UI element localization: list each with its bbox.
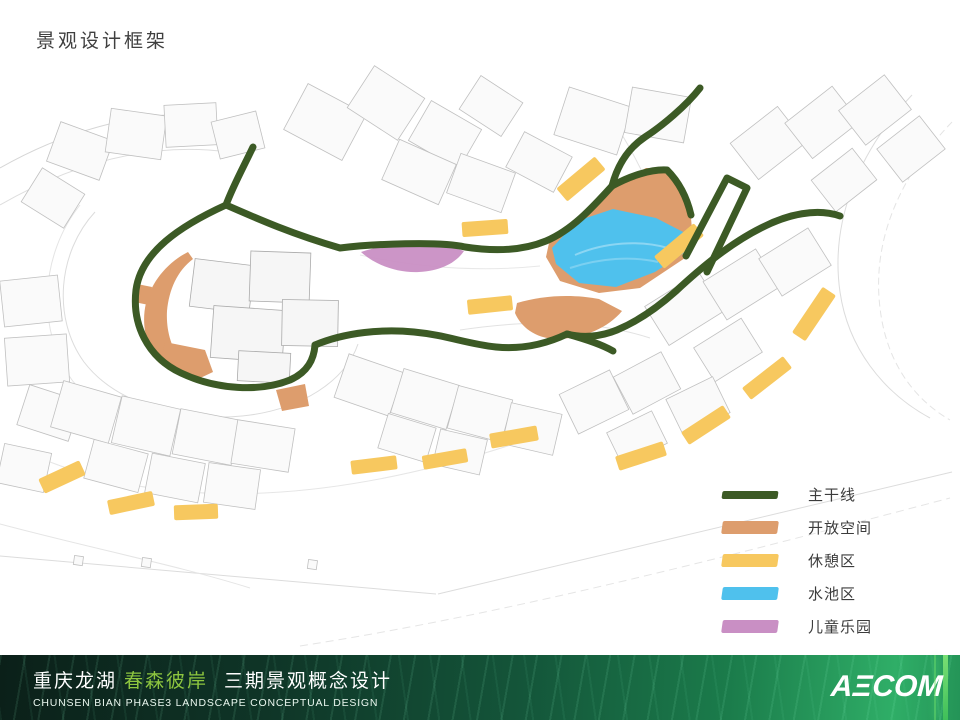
rest-area-bar — [107, 491, 155, 515]
legend: 主干线开放空间休憩区水池区儿童乐园 — [722, 478, 932, 643]
open-space-area — [276, 384, 309, 411]
legend-swatch-children_park — [721, 620, 779, 633]
rest-area-bar — [174, 504, 218, 521]
rest-area-bar — [792, 287, 836, 342]
rest-area-bar — [467, 295, 513, 315]
footer-cn-part2: 三期景观概念设计 — [224, 671, 392, 692]
legend-item-main_line: 主干线 — [722, 478, 932, 511]
legend-item-children_park: 儿童乐园 — [722, 610, 932, 643]
footer-project-subtitle: CHUNSEN BIAN PHASE3 LANDSCAPE CONCEPTUAL… — [33, 697, 378, 709]
footer-cn-part1: 重庆龙湖 — [33, 671, 117, 692]
legend-swatch-water_pool — [721, 587, 779, 600]
legend-label-children_park: 儿童乐园 — [808, 616, 872, 637]
aecom-logo: AΞCOM — [829, 670, 943, 704]
legend-label-main_line: 主干线 — [808, 484, 856, 505]
rest-area-bar — [462, 219, 509, 237]
slide: 景观设计框架 — [0, 0, 960, 720]
rest-area-bar — [350, 455, 397, 475]
legend-item-rest_area: 休憩区 — [722, 544, 932, 577]
legend-label-water_pool: 水池区 — [808, 583, 856, 604]
legend-item-open_space: 开放空间 — [722, 511, 932, 544]
legend-label-open_space: 开放空间 — [808, 517, 872, 538]
legend-swatch-rest_area — [721, 554, 779, 567]
legend-swatch-main_line — [721, 491, 778, 499]
cad-buildings-central — [189, 251, 338, 383]
footer-cn-highlight: 春森彼岸 — [124, 671, 208, 692]
rest-area-bar — [742, 356, 792, 400]
footer-project-title: 重庆龙湖春森彼岸三期景观概念设计 — [33, 666, 392, 693]
footer-banner: 重庆龙湖春森彼岸三期景观概念设计 CHUNSEN BIAN PHASE3 LAN… — [0, 655, 960, 720]
legend-swatch-open_space — [721, 521, 779, 534]
legend-item-water_pool: 水池区 — [722, 577, 932, 610]
legend-label-rest_area: 休憩区 — [808, 550, 856, 571]
